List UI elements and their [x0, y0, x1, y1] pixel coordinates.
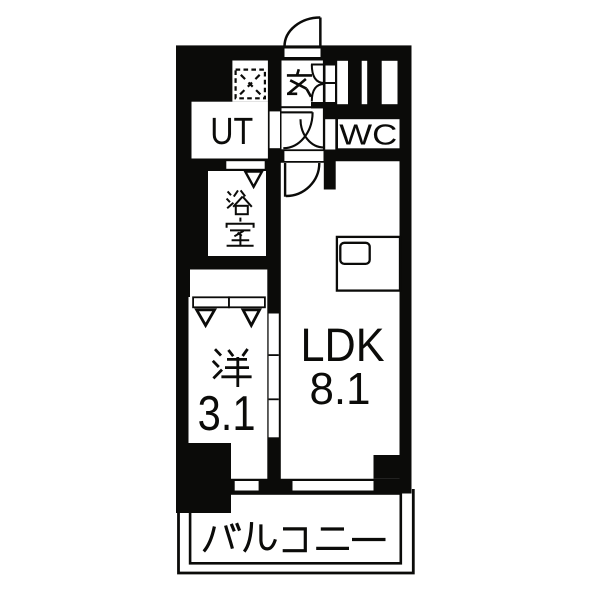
svg-text:WC: WC	[339, 120, 397, 152]
svg-text:8.1: 8.1	[310, 363, 371, 414]
svg-text:3.1: 3.1	[198, 387, 256, 441]
svg-text:UT: UT	[210, 111, 253, 153]
